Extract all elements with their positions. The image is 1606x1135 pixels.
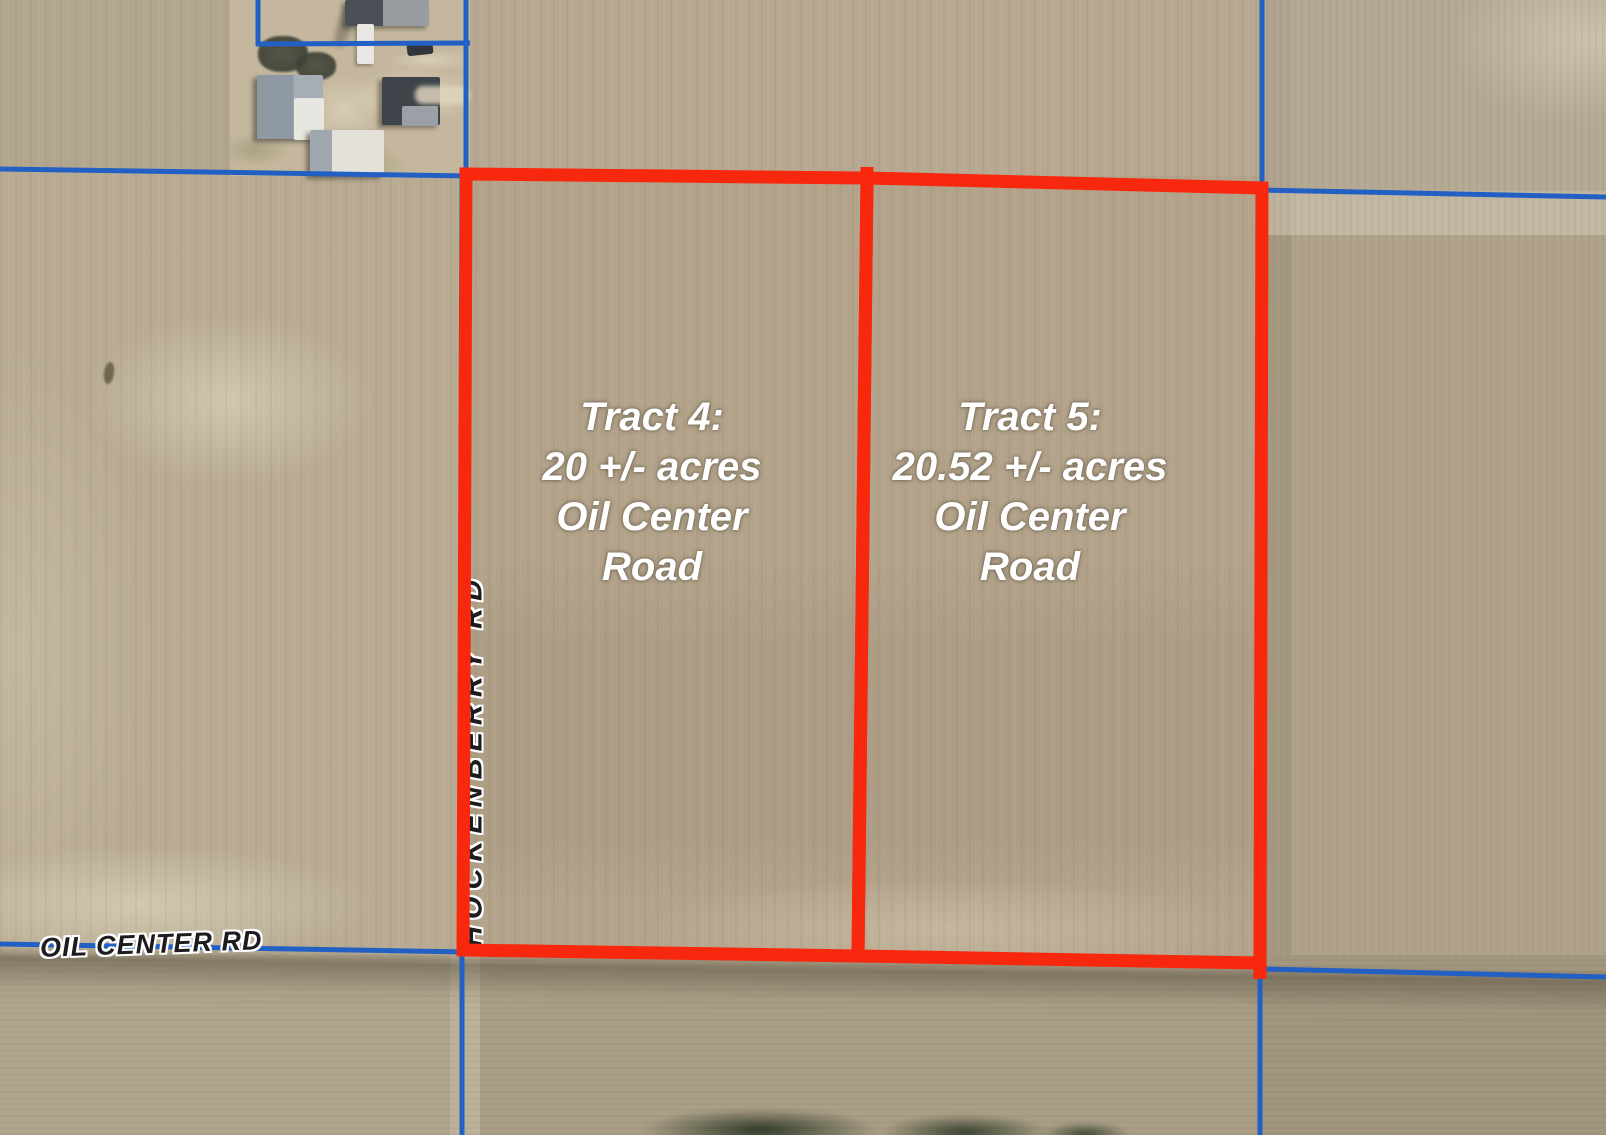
tract-4-label: Tract 4: 20 +/- acres Oil Center Road <box>452 392 852 592</box>
tract-4-label-line: Road <box>452 542 852 592</box>
tract-4-label-line: Tract 4: <box>452 392 852 442</box>
tract-4-label-line: Oil Center <box>452 492 852 542</box>
vegetation-patch <box>880 1114 1050 1135</box>
tract-4-label-line: 20 +/- acres <box>452 442 852 492</box>
vegetation-patch <box>640 1108 880 1135</box>
field-east <box>1266 0 1606 975</box>
tract-5-label-line: Tract 5: <box>830 392 1230 442</box>
tract-5-label-line: Oil Center <box>830 492 1230 542</box>
building-barn-dark-roof <box>402 106 438 126</box>
aerial-map: OIL CENTER RD HOCKENBERRY RD Tract 4: 20… <box>0 0 1606 1135</box>
tract-5-label: Tract 5: 20.52 +/- acres Oil Center Road <box>830 392 1230 592</box>
building-silo <box>357 24 374 64</box>
tract-5-label-line: Road <box>830 542 1230 592</box>
building-shed <box>345 0 429 26</box>
building-barn-white <box>310 130 384 176</box>
driveway <box>415 86 470 104</box>
tract-5-label-line: 20.52 +/- acres <box>830 442 1230 492</box>
hockenberry-rd-label: HOCKENBERRY RD <box>457 573 490 947</box>
vegetation-patch <box>1040 1122 1130 1135</box>
vehicle <box>406 41 433 57</box>
